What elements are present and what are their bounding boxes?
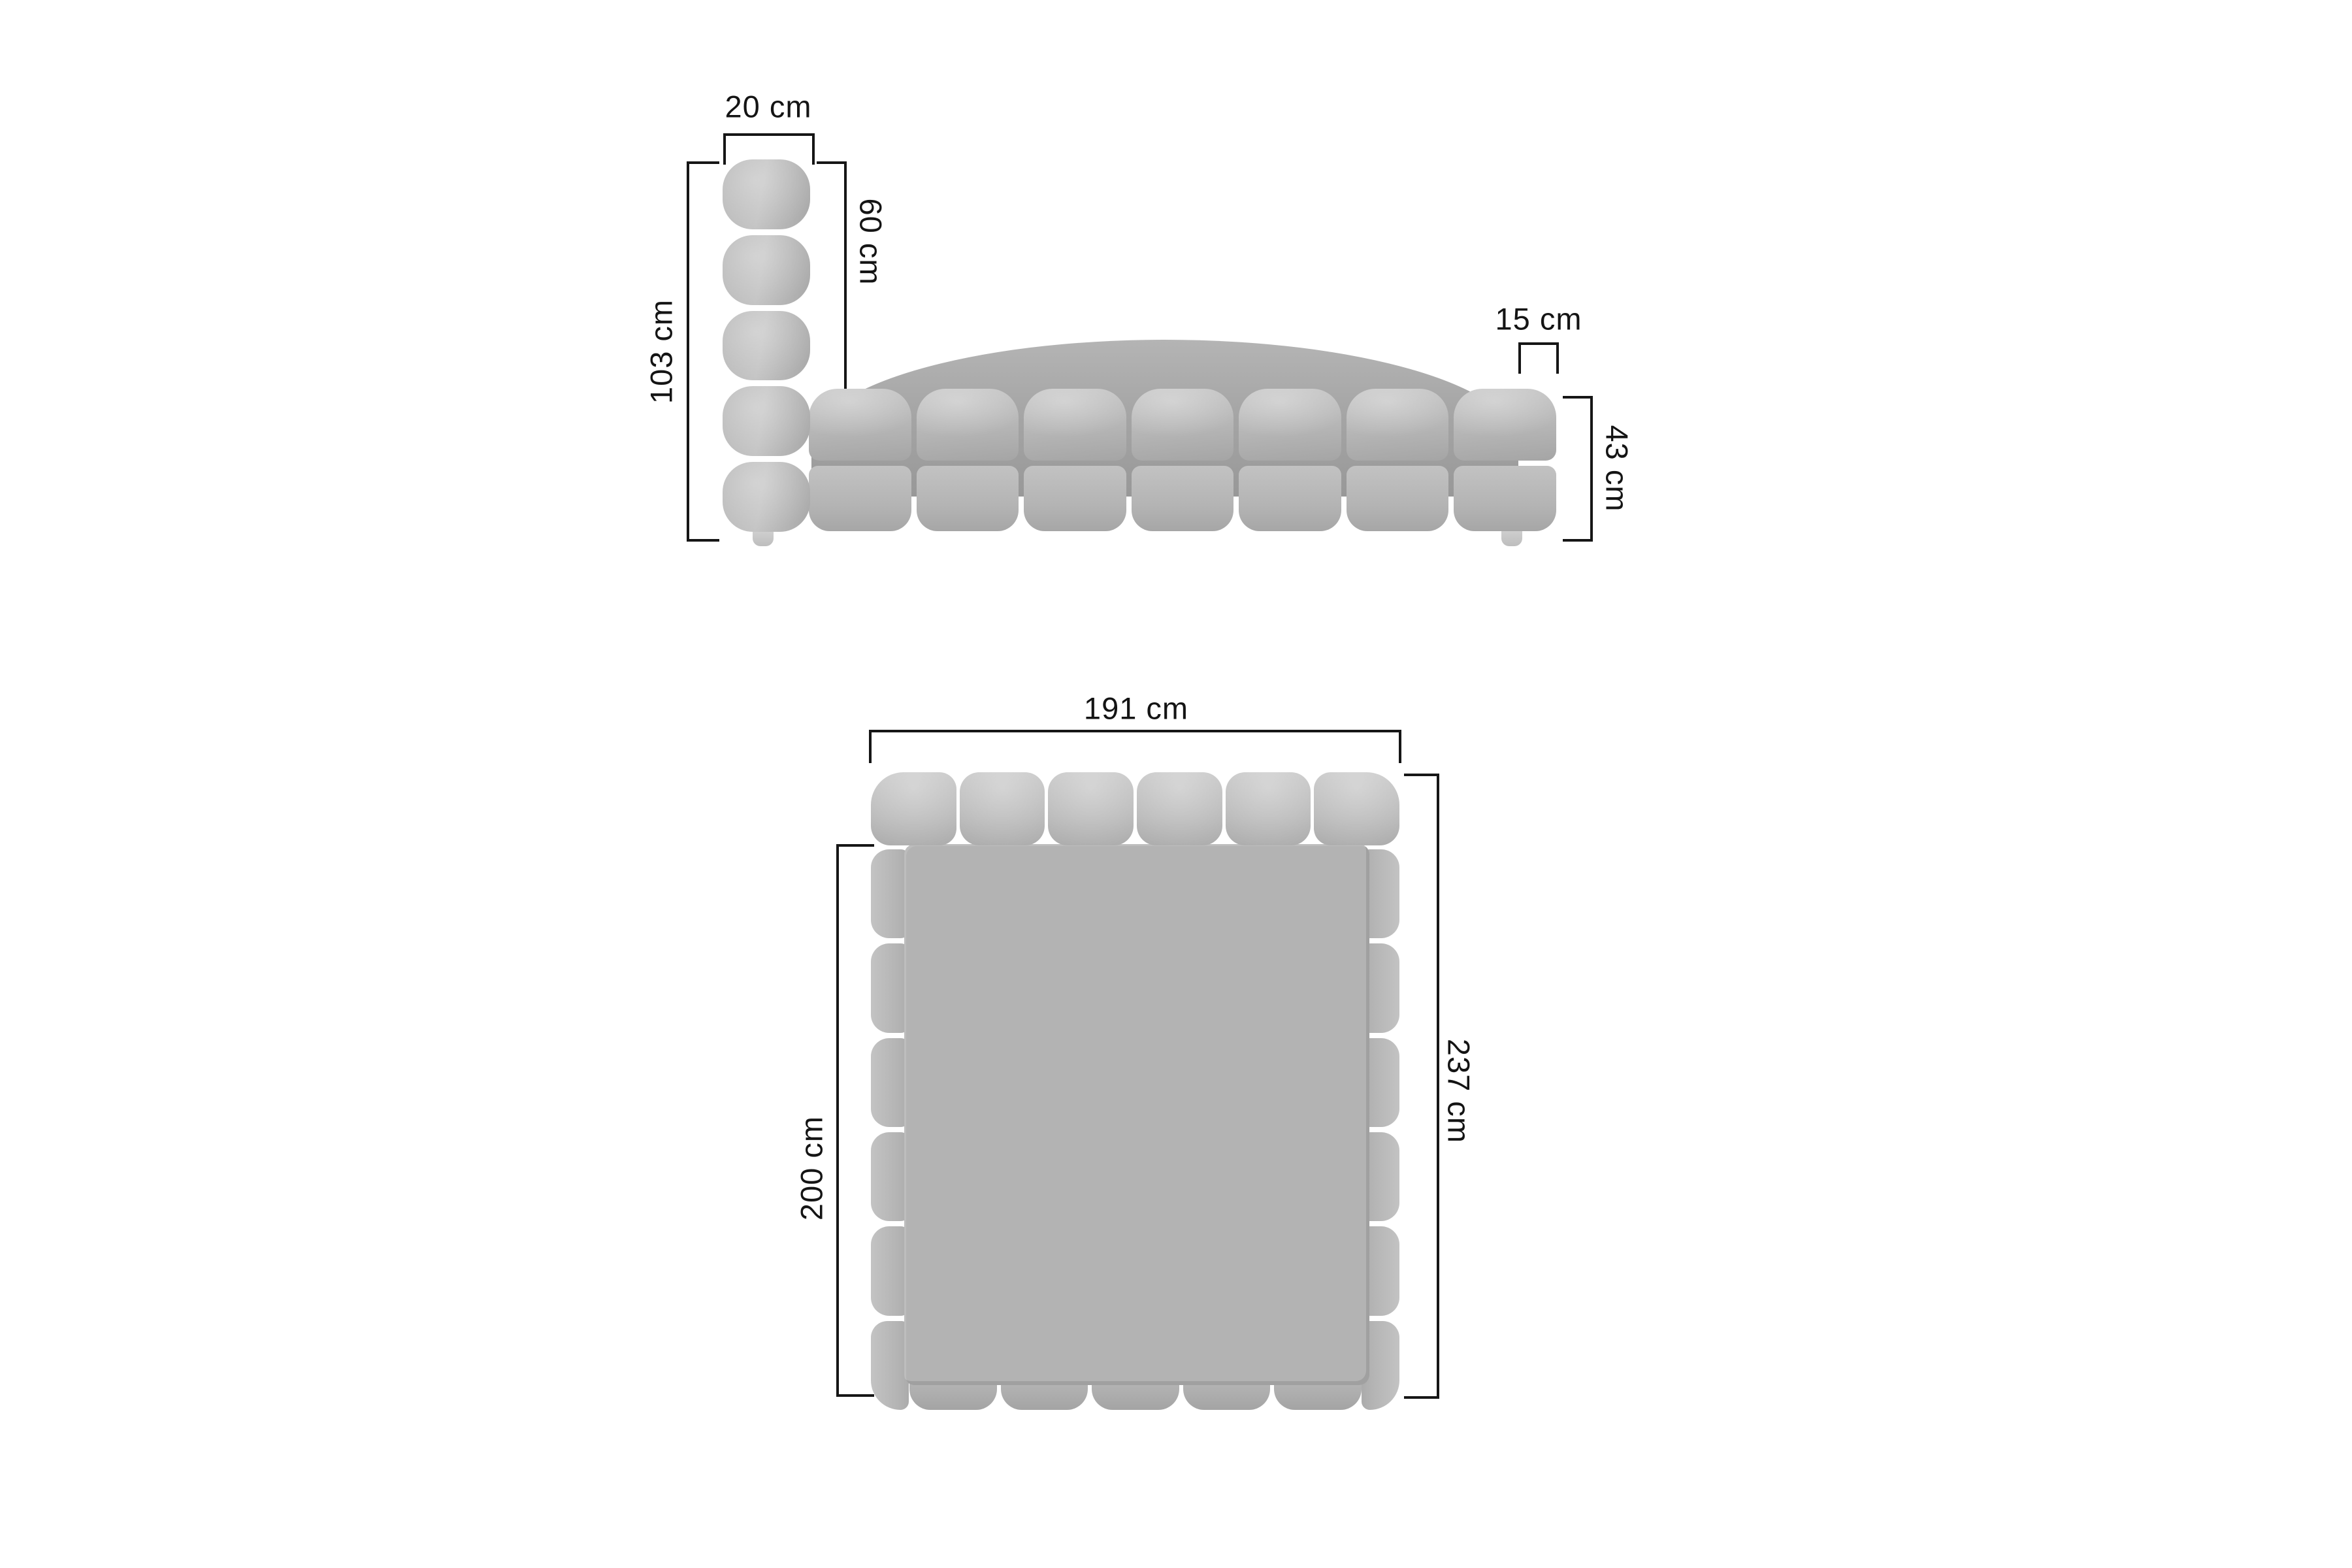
base-cushion bbox=[1239, 466, 1341, 531]
headboard-cushion bbox=[871, 772, 956, 845]
dim-mattress-length-bracket bbox=[836, 844, 874, 1397]
top-headboard-row bbox=[871, 772, 1399, 845]
base-cushion bbox=[1347, 466, 1449, 531]
headboard-cushion bbox=[1226, 772, 1311, 845]
top-mattress bbox=[904, 844, 1369, 1385]
dim-headboard-above-mattress-bracket bbox=[817, 161, 847, 405]
side-view: 20 cm 103 cm 60 cm 15 cm 43 cm bbox=[0, 0, 2352, 653]
base-cushion bbox=[809, 466, 911, 531]
base-cushion bbox=[1454, 389, 1556, 461]
side-cushion bbox=[871, 943, 909, 1032]
base-cushion bbox=[1024, 389, 1126, 461]
side-headboard bbox=[723, 159, 810, 532]
side-cushion bbox=[871, 1132, 909, 1221]
base-cushion bbox=[1454, 466, 1556, 531]
headboard-cushion bbox=[960, 772, 1045, 845]
dim-mattress-inset-label: 15 cm bbox=[1495, 304, 1582, 335]
dim-total-height-bracket bbox=[687, 161, 719, 542]
base-cushion bbox=[1239, 389, 1341, 461]
headboard-cushion bbox=[1314, 772, 1399, 845]
dim-mattress-length-label: 200 cm bbox=[796, 1116, 827, 1220]
base-cushion bbox=[917, 389, 1019, 461]
top-left-cushion-column bbox=[871, 849, 909, 1410]
dim-overall-width-label: 191 cm bbox=[1084, 693, 1188, 724]
dim-base-height-label: 43 cm bbox=[1602, 425, 1633, 512]
headboard-cushion bbox=[723, 311, 810, 381]
dim-base-height-bracket bbox=[1563, 396, 1593, 542]
base-cushion bbox=[917, 466, 1019, 531]
side-cushion bbox=[871, 1321, 909, 1410]
dim-overall-length-label: 237 cm bbox=[1444, 1039, 1475, 1143]
side-bed-base bbox=[809, 389, 1556, 531]
base-cushion bbox=[809, 389, 911, 461]
side-cushion bbox=[871, 849, 909, 938]
base-cushion bbox=[1132, 466, 1234, 531]
dim-headboard-above-mattress-label: 60 cm bbox=[856, 199, 887, 286]
base-cushion bbox=[1024, 466, 1126, 531]
side-cushion bbox=[871, 1226, 909, 1315]
dim-headboard-width-label: 20 cm bbox=[725, 91, 812, 122]
base-cushion bbox=[1347, 389, 1449, 461]
dim-overall-width-bracket bbox=[869, 730, 1401, 763]
dim-total-height-label: 103 cm bbox=[646, 299, 677, 404]
dim-mattress-inset-bracket bbox=[1518, 342, 1559, 374]
headboard-cushion bbox=[723, 462, 810, 532]
dim-overall-length-bracket bbox=[1404, 774, 1439, 1399]
side-cushion bbox=[871, 1038, 909, 1127]
base-cushion bbox=[1132, 389, 1234, 461]
top-view: 191 cm 160 cm 200 cm 237 cm bbox=[0, 653, 2352, 1568]
headboard-cushion bbox=[723, 235, 810, 305]
headboard-cushion bbox=[1137, 772, 1222, 845]
headboard-cushion bbox=[723, 386, 810, 456]
headboard-cushion bbox=[723, 159, 810, 229]
headboard-cushion bbox=[1048, 772, 1134, 845]
